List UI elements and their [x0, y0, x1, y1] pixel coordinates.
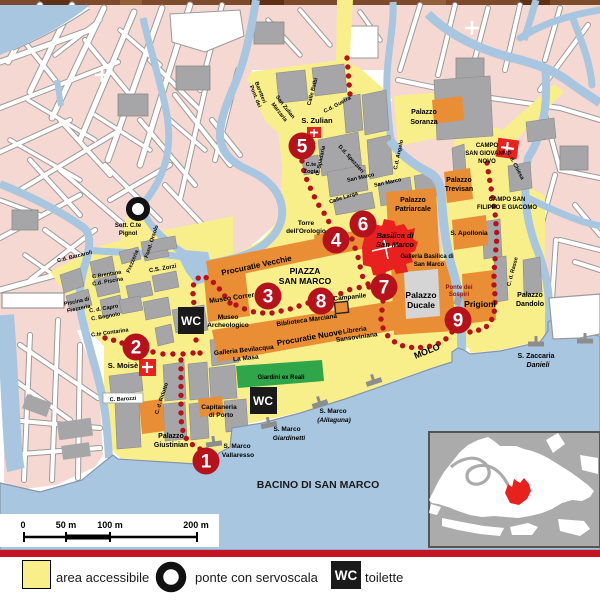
- svg-text:PIAZZA: PIAZZA: [290, 266, 321, 276]
- svg-text:7: 7: [379, 278, 390, 299]
- svg-text:Zogia: Zogia: [304, 169, 320, 175]
- svg-text:Giardinetti: Giardinetti: [273, 435, 306, 442]
- svg-text:Soranza: Soranza: [410, 119, 437, 126]
- svg-text:Pignol: Pignol: [119, 231, 138, 237]
- svg-text:S. Zaccaria: S. Zaccaria: [518, 353, 555, 360]
- svg-text:Palazzo: Palazzo: [411, 109, 437, 116]
- svg-text:Prigioni: Prigioni: [464, 299, 496, 309]
- svg-text:9: 9: [453, 311, 464, 332]
- svg-text:FILIPPO E GIACOMO: FILIPPO E GIACOMO: [477, 205, 537, 211]
- svg-text:San Marco: San Marco: [414, 262, 445, 268]
- svg-text:Trevisan: Trevisan: [445, 186, 473, 193]
- svg-text:200 m: 200 m: [183, 520, 209, 530]
- svg-text:2: 2: [131, 338, 142, 359]
- svg-text:8: 8: [316, 292, 327, 313]
- svg-text:Palazzo: Palazzo: [405, 290, 436, 300]
- svg-text:WC: WC: [181, 314, 201, 328]
- svg-text:S. Moisè: S. Moisè: [108, 361, 138, 370]
- svg-text:area accessibile: area accessibile: [56, 570, 149, 585]
- svg-text:3: 3: [263, 287, 274, 308]
- svg-text:SAN GIOVANNI: SAN GIOVANNI: [465, 151, 509, 157]
- svg-text:S. Marco: S. Marco: [273, 426, 300, 433]
- svg-text:50 m: 50 m: [56, 520, 77, 530]
- svg-text:Dandolo: Dandolo: [516, 301, 544, 308]
- svg-text:5: 5: [297, 137, 308, 158]
- svg-text:Vallaresso: Vallaresso: [222, 452, 254, 459]
- svg-text:di Porto: di Porto: [209, 412, 234, 419]
- svg-text:BACINO DI SAN MARCO: BACINO DI SAN MARCO: [257, 479, 380, 491]
- svg-text:C.te: C.te: [306, 162, 316, 168]
- svg-text:Museo: Museo: [218, 314, 239, 321]
- svg-text:Palazzo: Palazzo: [400, 197, 426, 204]
- svg-text:CAMPO: CAMPO: [476, 143, 499, 149]
- svg-text:WC: WC: [253, 394, 273, 408]
- svg-text:Capitaneria: Capitaneria: [201, 404, 237, 411]
- svg-text:S. Marco: S. Marco: [223, 443, 250, 450]
- svg-text:dell'Orologio: dell'Orologio: [286, 228, 326, 235]
- svg-text:S. Marco: S. Marco: [319, 408, 346, 415]
- svg-text:(Alilaguna): (Alilaguna): [317, 417, 351, 424]
- svg-text:Archeologico: Archeologico: [207, 322, 249, 329]
- svg-text:toilette: toilette: [365, 570, 403, 585]
- svg-text:Torre: Torre: [298, 220, 315, 227]
- svg-text:Danieli: Danieli: [527, 362, 551, 369]
- svg-text:Palazzo: Palazzo: [517, 292, 543, 299]
- svg-text:Galleria Basilica di: Galleria Basilica di: [400, 254, 454, 260]
- svg-text:CAMPO SAN: CAMPO SAN: [489, 197, 526, 203]
- svg-text:ponte con servoscala: ponte con servoscala: [195, 570, 319, 585]
- svg-text:4: 4: [331, 231, 342, 252]
- svg-text:Patriarcale: Patriarcale: [395, 206, 431, 213]
- svg-text:Basilica di: Basilica di: [376, 231, 414, 240]
- svg-text:Ducale: Ducale: [407, 300, 435, 310]
- svg-text:San Marco: San Marco: [376, 240, 414, 249]
- svg-text:WC: WC: [335, 568, 358, 583]
- svg-text:S. Zulian: S. Zulian: [301, 116, 333, 125]
- svg-text:NOVO: NOVO: [478, 159, 496, 165]
- svg-text:Palazzo: Palazzo: [158, 433, 184, 440]
- svg-text:0: 0: [20, 520, 25, 530]
- svg-text:Ponte dei: Ponte dei: [445, 285, 472, 291]
- svg-text:Giustinian: Giustinian: [154, 442, 188, 449]
- svg-text:6: 6: [358, 215, 369, 236]
- svg-text:S. Apollonia: S. Apollonia: [450, 230, 488, 237]
- svg-text:Sospiri: Sospiri: [449, 292, 470, 298]
- svg-text:1: 1: [201, 452, 212, 473]
- svg-text:Sott. C.te: Sott. C.te: [115, 223, 142, 229]
- svg-text:Palazzo: Palazzo: [446, 177, 472, 184]
- svg-text:Giardini ex Reali: Giardini ex Reali: [257, 375, 304, 381]
- svg-text:100 m: 100 m: [97, 520, 123, 530]
- svg-text:SAN MARCO: SAN MARCO: [279, 276, 332, 286]
